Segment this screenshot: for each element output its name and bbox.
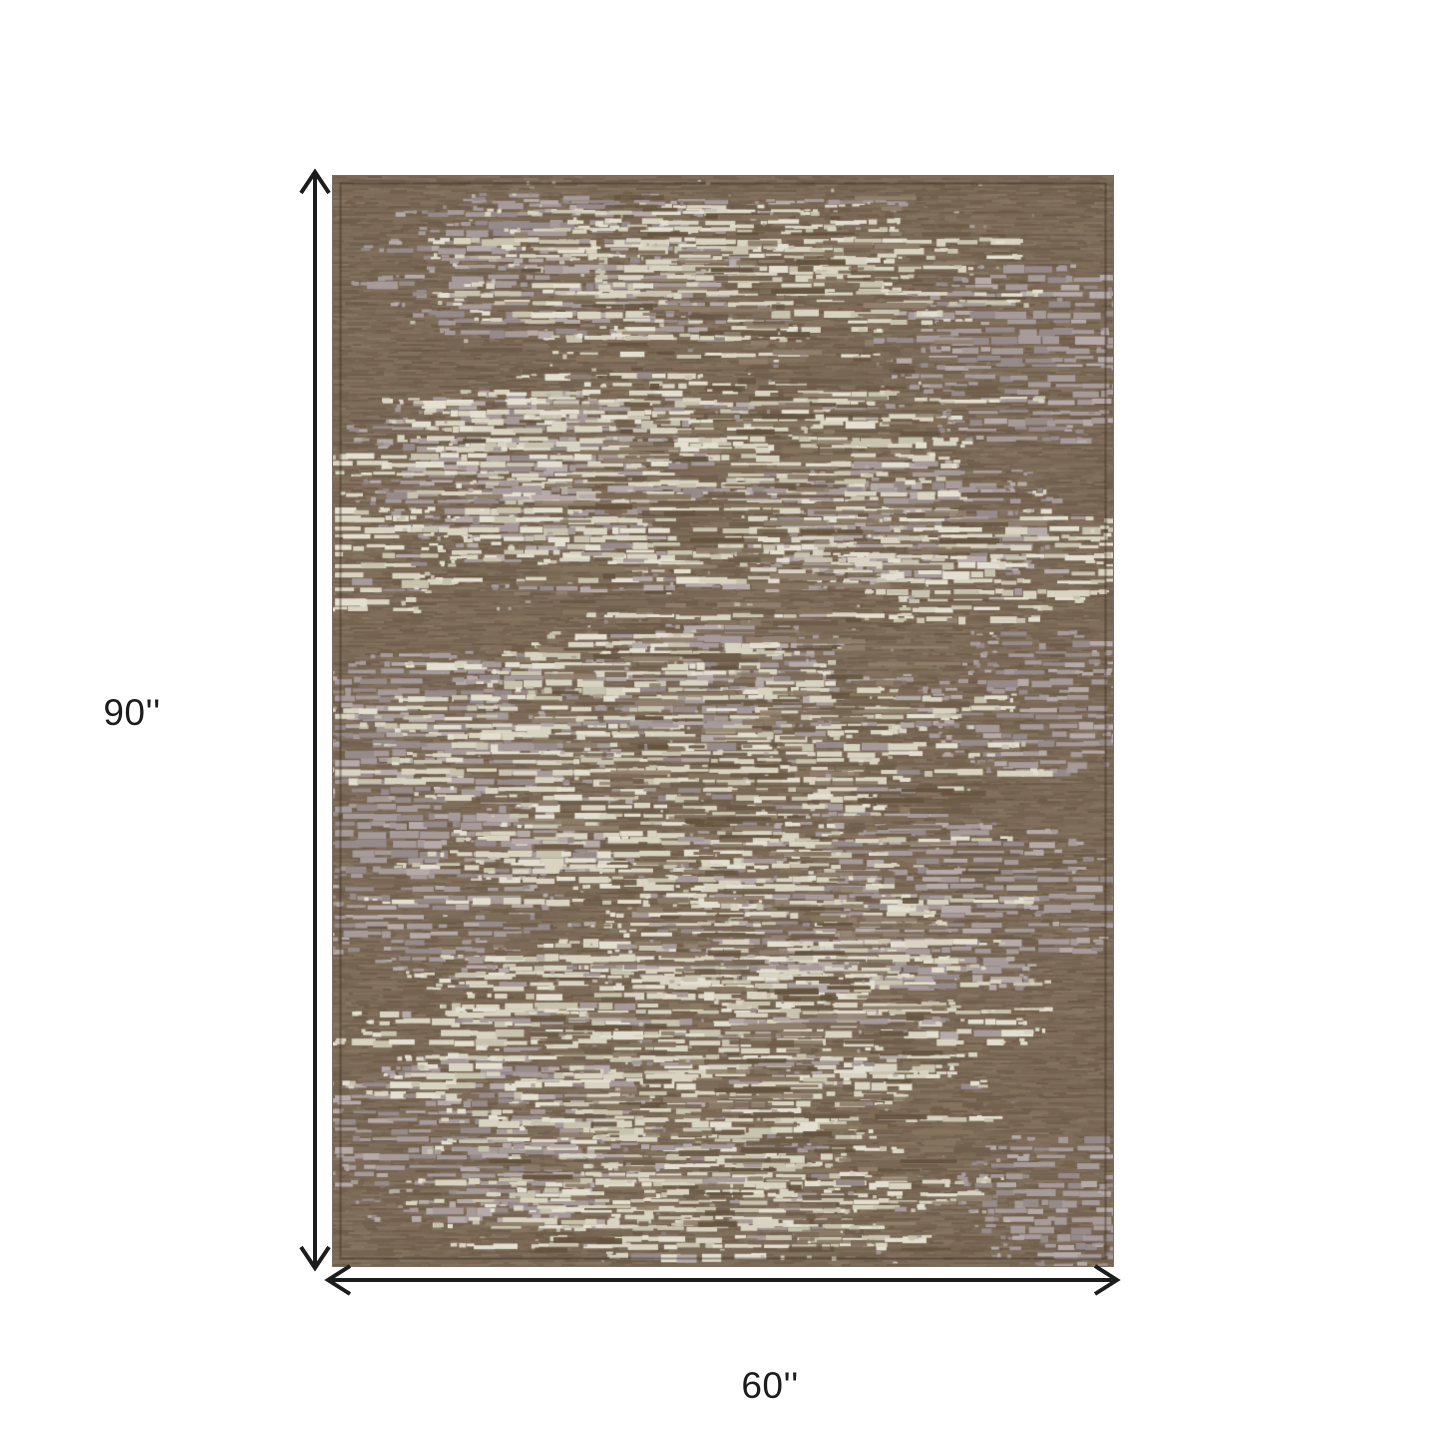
arrow-up-head-icon — [301, 172, 329, 193]
height-dimension-arrow — [301, 172, 329, 1268]
arrow-left-head-icon — [328, 1266, 350, 1294]
dimension-diagram: 90'' 60'' — [0, 0, 1445, 1445]
height-dimension-label: 90'' — [103, 692, 160, 734]
rug-product-image — [332, 175, 1114, 1267]
arrow-right-head-icon — [1095, 1266, 1117, 1294]
width-dimension-arrow — [328, 1266, 1117, 1294]
width-dimension-label: 60'' — [741, 1365, 798, 1407]
arrow-down-head-icon — [301, 1247, 329, 1268]
